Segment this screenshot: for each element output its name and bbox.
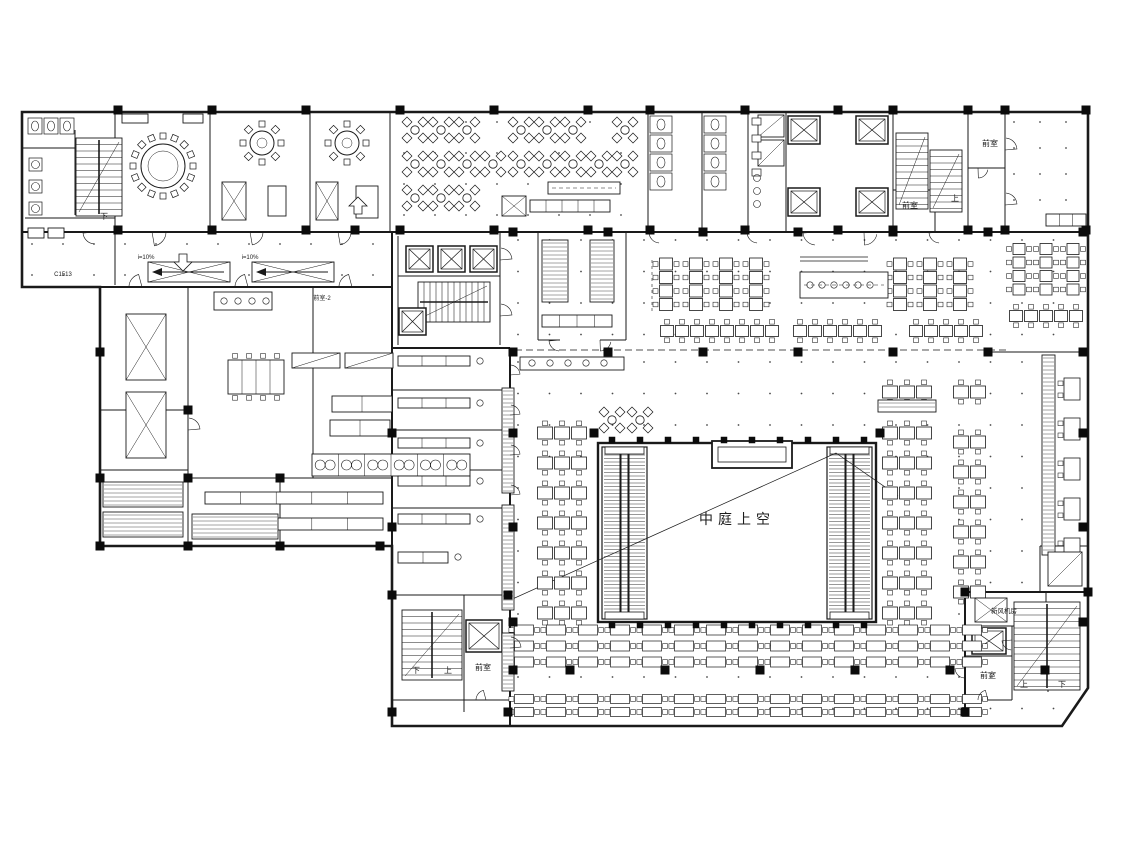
vestibule-label-ne-upper: 前室 bbox=[982, 138, 998, 148]
table-strip-5 bbox=[883, 421, 932, 625]
stair-down-label-sw: 下 bbox=[412, 666, 420, 675]
counter-44 bbox=[758, 140, 784, 166]
counter-7 bbox=[205, 492, 383, 504]
counter-0 bbox=[800, 272, 888, 298]
counter-17 bbox=[192, 514, 278, 539]
counter-13 bbox=[292, 353, 340, 368]
counter-5 bbox=[1042, 355, 1055, 555]
counter-40 bbox=[878, 400, 936, 412]
counter-43 bbox=[758, 115, 784, 137]
counter-9 bbox=[126, 314, 166, 380]
counter-36 bbox=[530, 200, 610, 212]
vestibule-label-se: 前室 bbox=[980, 670, 996, 680]
cad-floor-plan: 中庭上空前室前室前室前室新风机房下上上下下上C1513i=10%i=10%前室-… bbox=[0, 0, 1123, 843]
elevator-8 bbox=[466, 620, 502, 652]
floor-plan-drawing: 中庭上空前室前室前室前室新风机房下上上下下上C1513i=10%i=10%前室-… bbox=[0, 0, 1123, 843]
stair-3 bbox=[418, 282, 490, 322]
counter-34 bbox=[1046, 214, 1086, 226]
counter-31 bbox=[268, 186, 286, 216]
stair-up-label-ne: 上 bbox=[951, 194, 959, 203]
counter-1 bbox=[502, 388, 514, 493]
atrium-void-label: 中庭上空 bbox=[699, 511, 775, 527]
vestibule-label-ne-lower: 前室 bbox=[902, 200, 918, 210]
counter-23 bbox=[398, 514, 483, 524]
vestibule-label-sw: 前室 bbox=[475, 662, 491, 672]
atrium-platform bbox=[712, 441, 792, 468]
elevator-5 bbox=[438, 246, 465, 272]
table-strip-4 bbox=[538, 421, 587, 625]
counter-21 bbox=[398, 438, 483, 448]
ramp-1 bbox=[252, 262, 334, 282]
counter-20 bbox=[398, 398, 483, 408]
table-band-0 bbox=[509, 625, 988, 667]
counter-29 bbox=[183, 114, 203, 123]
counter-11 bbox=[332, 396, 392, 412]
counter-14 bbox=[345, 353, 393, 368]
counter-35 bbox=[548, 182, 620, 194]
counter-27 bbox=[542, 315, 612, 327]
fresh-air-room-label: 新风机房 bbox=[991, 606, 1017, 615]
counter-41 bbox=[28, 228, 44, 238]
counter-28 bbox=[122, 114, 148, 123]
elevator-2 bbox=[788, 188, 820, 216]
stair-4 bbox=[402, 610, 462, 680]
counter-37 bbox=[502, 196, 526, 216]
counter-3 bbox=[502, 633, 514, 691]
kitchen-island-table bbox=[228, 354, 284, 401]
counter-15 bbox=[103, 482, 183, 507]
counter-25 bbox=[542, 240, 568, 302]
room-tag-c1513: C1513 bbox=[54, 272, 72, 278]
stair-0 bbox=[76, 138, 122, 216]
counter-12 bbox=[330, 420, 390, 436]
counter-4 bbox=[520, 357, 624, 370]
counter-19 bbox=[398, 356, 483, 366]
stair-down-label-nw: 下 bbox=[100, 212, 108, 221]
elevator-3 bbox=[856, 188, 888, 216]
elevator-7 bbox=[399, 308, 426, 335]
counter-42 bbox=[48, 228, 64, 238]
stair-5 bbox=[1014, 602, 1080, 690]
counter-30 bbox=[222, 182, 246, 220]
counter-6 bbox=[312, 454, 470, 476]
counter-16 bbox=[103, 512, 183, 537]
stair-1 bbox=[896, 133, 928, 209]
counter-22 bbox=[398, 476, 483, 486]
elevator-0 bbox=[788, 116, 820, 144]
elevator-6 bbox=[470, 246, 497, 272]
elevator-4 bbox=[406, 246, 433, 272]
stair-up-label-se: 上 bbox=[1020, 680, 1028, 689]
stair-up-label-sw: 上 bbox=[444, 666, 452, 675]
ramp-slope-label-2: i=10% bbox=[242, 255, 260, 261]
vestibule-2-label: 前室-2 bbox=[313, 294, 331, 302]
elevator-1 bbox=[856, 116, 888, 144]
counter-18 bbox=[214, 292, 272, 310]
stair-down-label-se: 下 bbox=[1058, 680, 1066, 689]
counter-39 bbox=[1048, 552, 1082, 586]
counter-32 bbox=[316, 182, 338, 220]
escalator-west bbox=[602, 447, 647, 619]
counter-26 bbox=[590, 240, 614, 302]
counter-10 bbox=[126, 392, 166, 458]
ramp-slope-label-1: i=10% bbox=[138, 255, 156, 261]
escalator-east bbox=[827, 447, 872, 619]
